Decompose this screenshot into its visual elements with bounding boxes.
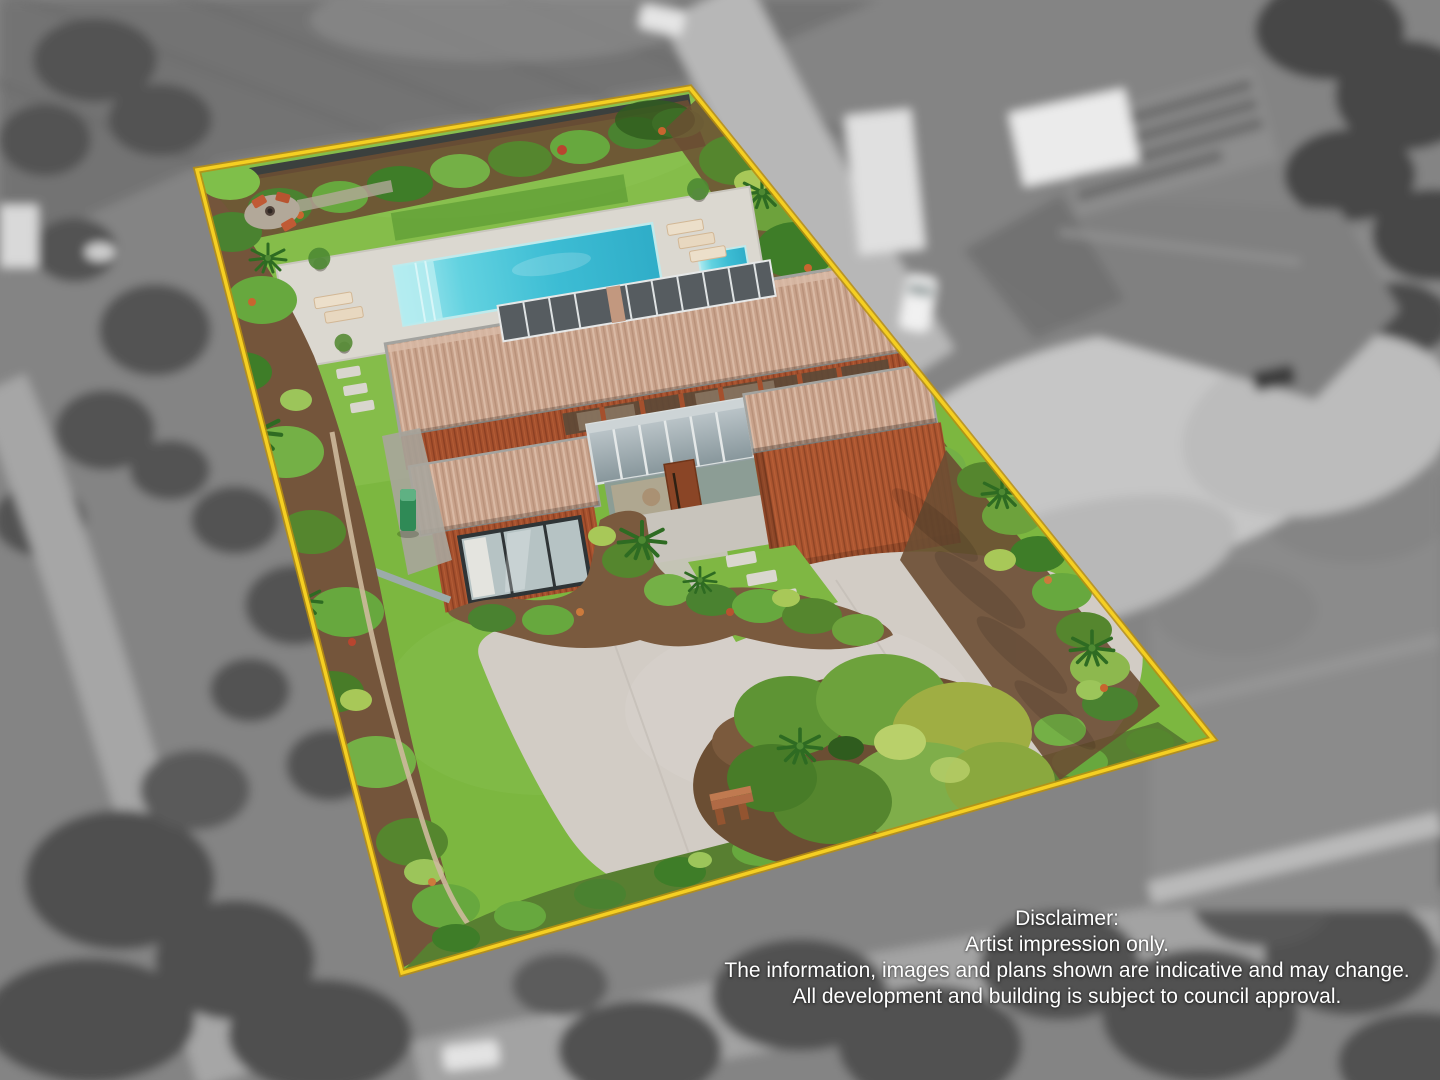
disclaimer-text: Disclaimer: Artist impression only. The …	[697, 906, 1437, 1010]
disclaimer-line: Artist impression only.	[697, 932, 1437, 958]
disclaimer-title: Disclaimer:	[697, 906, 1437, 932]
listing-aerial-composite: Disclaimer: Artist impression only. The …	[0, 0, 1440, 1080]
disclaimer-line: All development and building is subject …	[697, 984, 1437, 1010]
shed-roof	[0, 205, 38, 267]
disclaimer-line: The information, images and plans shown …	[697, 958, 1437, 984]
